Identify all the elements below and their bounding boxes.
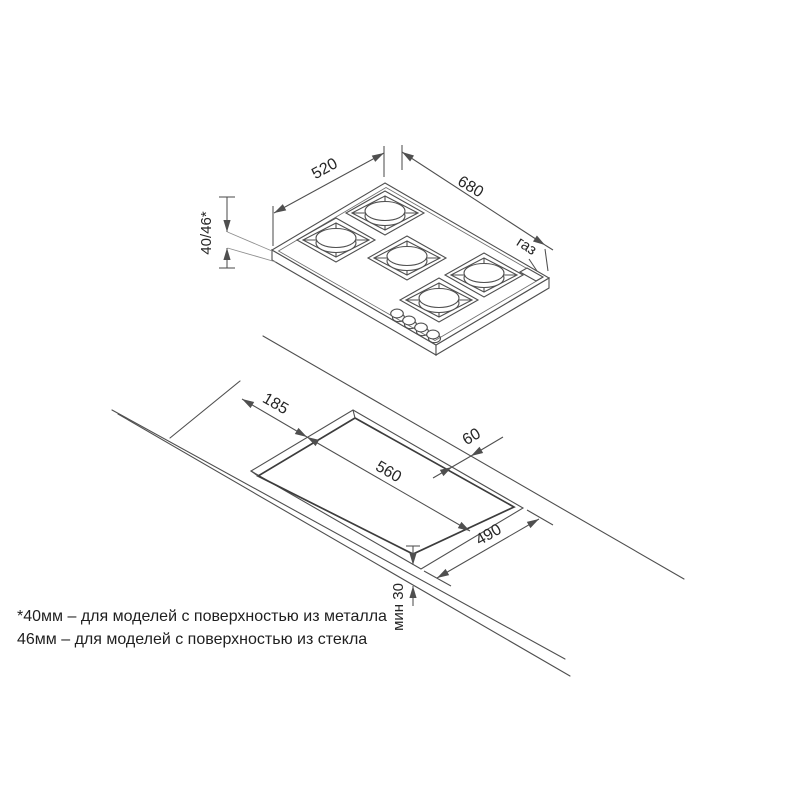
countertop-back-edge bbox=[263, 336, 684, 579]
burner-ring-top bbox=[365, 202, 405, 221]
dim-label-680: 680 bbox=[454, 173, 486, 201]
dim-label-185: 185 bbox=[259, 390, 291, 418]
dim-cutout-depth-490: 490 bbox=[424, 510, 553, 586]
burner-ring-top bbox=[464, 264, 504, 283]
knob bbox=[403, 316, 416, 325]
extension-line bbox=[545, 249, 548, 271]
dim-offset-185: 185 bbox=[242, 390, 307, 437]
dim-height-40-46: 40/46* bbox=[198, 197, 276, 268]
burner-ring-top bbox=[419, 289, 459, 308]
installation-diagram: 520 680 bbox=[0, 0, 800, 800]
dim-label-560: 560 bbox=[372, 458, 404, 486]
dimension-line bbox=[452, 456, 471, 467]
hob-isometric-view: 520 680 bbox=[198, 145, 553, 355]
extension-line bbox=[527, 510, 553, 525]
countertop-left-edge bbox=[170, 381, 240, 438]
dim-front-min-30: мин 30 bbox=[390, 546, 420, 631]
extension-line bbox=[545, 245, 553, 250]
footnote: *40мм – для моделей с поверхностью из ме… bbox=[17, 608, 387, 648]
dim-label-40-46: 40/46* bbox=[198, 211, 215, 255]
dim-label-min-30: мин 30 bbox=[390, 583, 407, 631]
leader-line bbox=[228, 232, 273, 251]
burner-ring-top bbox=[316, 229, 356, 248]
installation-diagram-page: 520 680 bbox=[0, 0, 800, 800]
cutout-corner-step bbox=[251, 471, 258, 476]
dim-label-60: 60 bbox=[460, 425, 484, 449]
hob-body bbox=[272, 183, 549, 355]
dimension-line bbox=[433, 467, 452, 478]
footnote-line-2: 46мм – для моделей с поверхностью из сте… bbox=[17, 631, 367, 648]
countertop-cutout-view: 185 560 60 490 мин 30 bbox=[112, 336, 684, 676]
dim-back-gap-60: 60 bbox=[433, 425, 503, 478]
gas-label: газ bbox=[513, 234, 539, 259]
footnote-line-1: *40мм – для моделей с поверхностью из ме… bbox=[17, 608, 387, 625]
leader-line bbox=[228, 248, 277, 262]
dim-label-490: 490 bbox=[473, 521, 505, 549]
knob bbox=[391, 309, 404, 318]
knob bbox=[415, 323, 428, 332]
knob bbox=[427, 330, 440, 339]
burner-ring-top bbox=[387, 247, 427, 266]
